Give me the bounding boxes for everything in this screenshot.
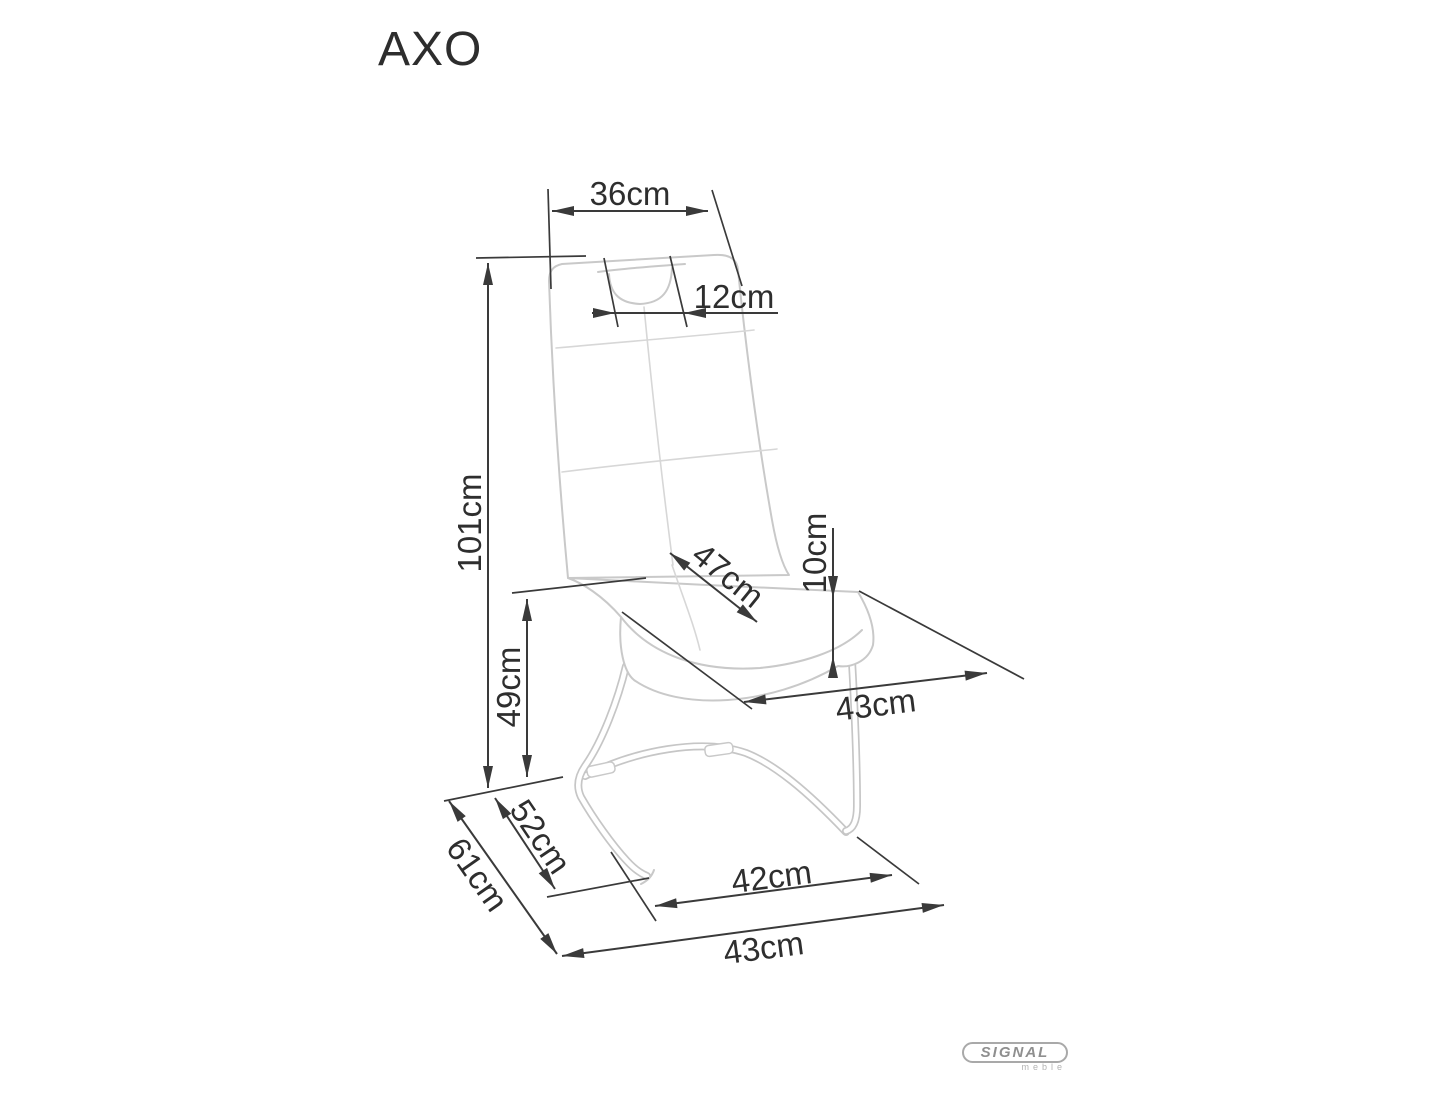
ext-seat43-right [859,591,1024,679]
dim-label-total-height: 101cm [451,473,488,572]
chair-dimension-diagram: 36cm 12cm 101cm 49cm 47cm 1 [0,0,1445,1105]
dim-label-base-inner-depth: 52cm [503,793,579,881]
dim-label-base-outer-depth: 61cm [439,831,516,918]
ext-42-right [857,837,919,884]
dim-seat-height: 49cm [490,599,527,777]
frame-rear-crossbar [585,746,846,832]
dim-base-outer-width: 43cm [562,905,944,971]
diagram-page: AXO [0,0,1445,1105]
dim-label-seat-height: 49cm [490,647,527,728]
dim-backrest-top-width: 36cm [552,175,708,212]
dim-base-inner-width: 42cm [655,853,892,906]
dim-total-height: 101cm [451,263,488,788]
dim-label-seat-width: 43cm [833,681,918,728]
signal-logo-brand: SIGNAL [981,1045,1050,1060]
ext-floor-left [444,777,563,801]
seat-cushion [568,578,873,701]
dim-base-inner-depth: 52cm [495,793,578,889]
dim-label-base-outer-width: 43cm [721,924,806,971]
dim-label-backrest-top-width: 36cm [590,175,671,212]
dim-label-cushion-thickness: 10cm [796,513,833,594]
dim-label-handle-width: 12cm [694,278,775,315]
frame-far-leg [846,644,857,831]
signal-logo: SIGNAL [962,1042,1068,1063]
ext-height-top [476,256,586,258]
signal-logo-subbrand: meble [1004,1062,1066,1072]
dim-label-base-inner-width: 42cm [729,853,814,900]
